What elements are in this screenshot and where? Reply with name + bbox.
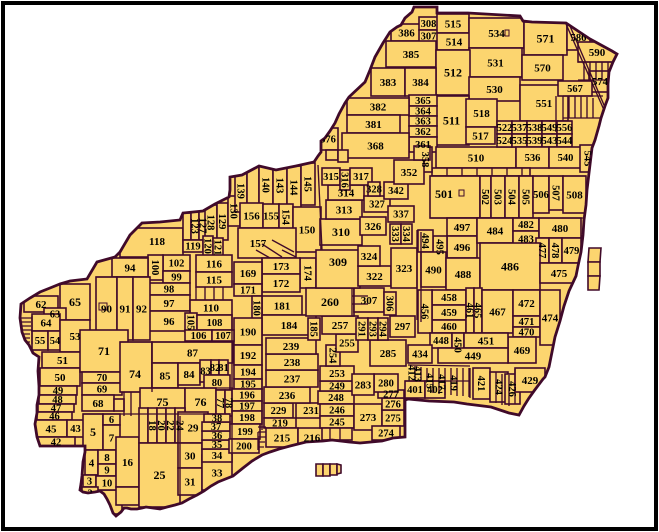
svg-text:467: 467 bbox=[489, 306, 506, 318]
svg-text:130: 130 bbox=[227, 203, 238, 219]
svg-text:567: 567 bbox=[567, 84, 583, 95]
svg-text:65: 65 bbox=[69, 295, 81, 309]
svg-text:55: 55 bbox=[35, 336, 46, 347]
svg-text:334: 334 bbox=[400, 226, 411, 243]
svg-text:97: 97 bbox=[164, 298, 176, 310]
svg-text:570: 570 bbox=[534, 62, 551, 74]
svg-text:275: 275 bbox=[385, 414, 401, 425]
svg-text:291: 291 bbox=[355, 321, 366, 337]
svg-text:194: 194 bbox=[240, 368, 257, 379]
svg-text:544: 544 bbox=[557, 136, 574, 147]
svg-text:365: 365 bbox=[415, 96, 431, 107]
svg-text:449: 449 bbox=[465, 350, 482, 362]
svg-text:536: 536 bbox=[525, 153, 541, 164]
svg-text:274: 274 bbox=[378, 429, 395, 440]
svg-text:155: 155 bbox=[263, 212, 279, 223]
svg-text:254: 254 bbox=[326, 348, 337, 365]
svg-text:307: 307 bbox=[421, 32, 437, 43]
svg-text:424: 424 bbox=[492, 379, 503, 396]
svg-text:415: 415 bbox=[423, 373, 434, 389]
svg-text:483: 483 bbox=[518, 235, 534, 246]
svg-text:219: 219 bbox=[272, 419, 288, 430]
svg-text:306: 306 bbox=[383, 296, 394, 312]
svg-text:497: 497 bbox=[454, 222, 471, 234]
svg-text:419: 419 bbox=[447, 375, 458, 391]
svg-text:448: 448 bbox=[433, 336, 449, 347]
svg-text:102: 102 bbox=[169, 259, 185, 270]
svg-text:494: 494 bbox=[419, 233, 430, 250]
svg-text:484: 484 bbox=[487, 225, 504, 237]
svg-text:51: 51 bbox=[57, 355, 68, 367]
svg-text:98: 98 bbox=[164, 285, 175, 296]
svg-text:107: 107 bbox=[215, 331, 231, 342]
svg-text:495: 495 bbox=[433, 239, 444, 255]
svg-text:6: 6 bbox=[109, 415, 114, 426]
svg-text:482: 482 bbox=[518, 220, 534, 231]
svg-text:538: 538 bbox=[527, 123, 543, 134]
svg-text:10: 10 bbox=[102, 479, 113, 490]
svg-text:30: 30 bbox=[185, 450, 197, 462]
svg-text:53: 53 bbox=[70, 331, 82, 343]
svg-text:80: 80 bbox=[212, 378, 223, 389]
svg-text:198: 198 bbox=[239, 413, 255, 424]
svg-text:283: 283 bbox=[355, 379, 372, 391]
svg-text:352: 352 bbox=[401, 167, 418, 179]
svg-text:100: 100 bbox=[149, 260, 160, 276]
svg-text:450: 450 bbox=[451, 337, 462, 353]
svg-text:139: 139 bbox=[234, 183, 245, 199]
svg-text:54: 54 bbox=[50, 336, 61, 347]
svg-text:543: 543 bbox=[542, 136, 558, 147]
svg-text:501: 501 bbox=[435, 187, 453, 201]
svg-text:45: 45 bbox=[46, 423, 58, 435]
svg-text:571: 571 bbox=[537, 32, 555, 46]
svg-text:293: 293 bbox=[366, 321, 377, 337]
svg-text:294: 294 bbox=[376, 321, 387, 338]
svg-text:181: 181 bbox=[274, 300, 291, 312]
svg-text:556: 556 bbox=[557, 123, 573, 134]
svg-text:43: 43 bbox=[70, 424, 81, 435]
svg-text:25: 25 bbox=[154, 468, 166, 482]
svg-text:574: 574 bbox=[592, 77, 609, 88]
svg-text:342: 342 bbox=[388, 186, 404, 197]
svg-text:116: 116 bbox=[206, 258, 222, 270]
svg-text:157: 157 bbox=[250, 238, 267, 250]
svg-text:517: 517 bbox=[472, 130, 489, 142]
svg-text:358: 358 bbox=[419, 152, 430, 168]
svg-text:479: 479 bbox=[564, 246, 580, 257]
svg-text:231: 231 bbox=[303, 406, 319, 417]
svg-text:180: 180 bbox=[250, 300, 261, 316]
svg-text:255: 255 bbox=[339, 339, 355, 350]
svg-text:273: 273 bbox=[360, 412, 377, 424]
svg-text:384: 384 bbox=[412, 77, 429, 89]
svg-text:537: 537 bbox=[512, 123, 528, 134]
svg-text:144: 144 bbox=[287, 180, 298, 197]
svg-text:323: 323 bbox=[396, 263, 413, 275]
svg-text:68: 68 bbox=[93, 398, 105, 410]
svg-text:280: 280 bbox=[378, 379, 394, 390]
svg-text:368: 368 bbox=[367, 140, 384, 152]
svg-text:8: 8 bbox=[104, 452, 110, 464]
svg-text:511: 511 bbox=[443, 114, 460, 128]
svg-text:154: 154 bbox=[279, 209, 290, 226]
svg-text:276: 276 bbox=[385, 400, 401, 411]
svg-text:121: 121 bbox=[211, 240, 222, 256]
svg-text:169: 169 bbox=[240, 268, 257, 280]
svg-text:172: 172 bbox=[273, 278, 290, 290]
svg-text:34: 34 bbox=[212, 451, 223, 462]
svg-text:531: 531 bbox=[487, 57, 504, 69]
svg-text:236: 236 bbox=[279, 390, 296, 402]
svg-text:512: 512 bbox=[444, 66, 462, 80]
svg-text:237: 237 bbox=[284, 373, 301, 385]
svg-text:472: 472 bbox=[518, 298, 535, 310]
svg-text:94: 94 bbox=[125, 262, 137, 274]
svg-text:333: 333 bbox=[389, 226, 400, 242]
svg-text:480: 480 bbox=[552, 223, 569, 235]
svg-text:229: 229 bbox=[271, 406, 287, 417]
svg-text:508: 508 bbox=[566, 189, 583, 201]
svg-text:308: 308 bbox=[421, 19, 437, 30]
svg-text:310: 310 bbox=[332, 225, 350, 239]
svg-text:327: 327 bbox=[369, 200, 385, 211]
svg-text:590: 590 bbox=[589, 47, 606, 59]
svg-text:143: 143 bbox=[273, 178, 284, 194]
svg-text:33: 33 bbox=[212, 467, 224, 479]
svg-text:260: 260 bbox=[321, 295, 339, 309]
svg-text:477: 477 bbox=[536, 243, 547, 259]
svg-text:9: 9 bbox=[104, 466, 109, 477]
svg-text:382: 382 bbox=[370, 101, 387, 113]
svg-text:90: 90 bbox=[101, 303, 113, 315]
svg-text:328: 328 bbox=[366, 185, 382, 196]
svg-text:322: 322 bbox=[366, 271, 383, 283]
svg-text:456: 456 bbox=[418, 304, 429, 320]
svg-text:245: 245 bbox=[329, 418, 345, 429]
svg-text:522: 522 bbox=[497, 123, 513, 134]
svg-text:313: 313 bbox=[336, 204, 353, 216]
svg-text:535: 535 bbox=[512, 136, 528, 147]
svg-text:507: 507 bbox=[549, 185, 560, 201]
svg-text:31: 31 bbox=[185, 476, 196, 488]
svg-text:119: 119 bbox=[185, 242, 200, 253]
svg-text:184: 184 bbox=[281, 320, 298, 332]
svg-text:5: 5 bbox=[90, 425, 96, 439]
svg-text:451: 451 bbox=[478, 335, 495, 347]
svg-text:29: 29 bbox=[188, 422, 200, 434]
svg-text:361: 361 bbox=[415, 140, 431, 151]
svg-text:315: 315 bbox=[323, 172, 339, 183]
svg-text:539: 539 bbox=[527, 136, 543, 147]
svg-text:118: 118 bbox=[149, 236, 165, 248]
svg-text:248: 248 bbox=[328, 393, 344, 404]
svg-text:85: 85 bbox=[160, 370, 172, 382]
svg-text:199: 199 bbox=[237, 427, 253, 438]
svg-text:246: 246 bbox=[329, 406, 345, 417]
svg-text:434: 434 bbox=[412, 350, 429, 361]
svg-text:22: 22 bbox=[164, 420, 175, 431]
svg-text:84: 84 bbox=[184, 369, 196, 381]
svg-text:106: 106 bbox=[191, 331, 207, 342]
svg-text:515: 515 bbox=[445, 18, 462, 30]
svg-text:78: 78 bbox=[222, 398, 233, 409]
svg-text:185: 185 bbox=[307, 321, 318, 337]
svg-text:534: 534 bbox=[488, 28, 505, 40]
svg-text:421: 421 bbox=[475, 376, 486, 392]
svg-text:383: 383 bbox=[380, 77, 397, 89]
svg-text:190: 190 bbox=[240, 326, 257, 338]
svg-text:156: 156 bbox=[243, 210, 260, 222]
svg-text:469: 469 bbox=[514, 345, 531, 357]
svg-text:62: 62 bbox=[36, 299, 48, 311]
svg-text:99: 99 bbox=[171, 273, 182, 284]
svg-text:253: 253 bbox=[329, 369, 345, 380]
svg-text:417: 417 bbox=[435, 374, 446, 390]
svg-text:510: 510 bbox=[468, 152, 485, 164]
svg-text:503: 503 bbox=[491, 189, 502, 205]
svg-text:362: 362 bbox=[415, 127, 431, 138]
svg-text:75: 75 bbox=[157, 395, 169, 409]
svg-text:70: 70 bbox=[97, 373, 108, 384]
svg-text:460: 460 bbox=[441, 322, 457, 333]
svg-text:316: 316 bbox=[338, 172, 349, 188]
svg-text:24: 24 bbox=[173, 420, 184, 431]
svg-text:470: 470 bbox=[519, 328, 535, 339]
svg-text:429: 429 bbox=[522, 375, 539, 387]
svg-text:140: 140 bbox=[259, 177, 270, 193]
svg-text:285: 285 bbox=[380, 348, 397, 360]
svg-text:496: 496 bbox=[454, 242, 471, 254]
svg-text:74: 74 bbox=[129, 367, 141, 381]
svg-text:4: 4 bbox=[89, 457, 95, 469]
svg-text:150: 150 bbox=[299, 224, 316, 236]
svg-text:486: 486 bbox=[501, 260, 519, 274]
svg-text:91: 91 bbox=[120, 303, 131, 315]
svg-text:76: 76 bbox=[195, 395, 207, 409]
svg-text:215: 215 bbox=[274, 432, 291, 444]
svg-text:38: 38 bbox=[212, 414, 223, 425]
svg-text:518: 518 bbox=[473, 108, 490, 120]
svg-text:478: 478 bbox=[549, 243, 560, 259]
svg-text:81: 81 bbox=[218, 363, 229, 374]
svg-text:324: 324 bbox=[361, 251, 378, 263]
svg-text:506: 506 bbox=[533, 190, 549, 201]
svg-text:200: 200 bbox=[236, 442, 252, 453]
svg-text:120: 120 bbox=[201, 238, 212, 254]
svg-text:530: 530 bbox=[486, 84, 503, 96]
svg-text:363: 363 bbox=[415, 117, 431, 128]
svg-text:71: 71 bbox=[98, 344, 110, 358]
svg-text:514: 514 bbox=[446, 36, 463, 48]
svg-text:129: 129 bbox=[216, 214, 227, 230]
svg-text:505: 505 bbox=[519, 189, 530, 205]
svg-text:128: 128 bbox=[204, 215, 215, 231]
svg-text:16: 16 bbox=[122, 457, 134, 469]
svg-text:115: 115 bbox=[206, 274, 222, 286]
svg-text:307: 307 bbox=[361, 295, 378, 307]
svg-text:385: 385 bbox=[403, 49, 420, 61]
svg-text:540: 540 bbox=[558, 153, 574, 164]
svg-text:502: 502 bbox=[479, 189, 490, 205]
svg-text:413: 413 bbox=[411, 366, 422, 382]
svg-text:145: 145 bbox=[301, 176, 312, 192]
svg-text:401: 401 bbox=[407, 385, 423, 396]
svg-text:504: 504 bbox=[505, 189, 516, 206]
svg-text:173: 173 bbox=[273, 261, 290, 273]
svg-text:475: 475 bbox=[551, 268, 568, 280]
svg-text:551: 551 bbox=[536, 98, 553, 110]
svg-text:317: 317 bbox=[353, 172, 369, 183]
svg-text:249: 249 bbox=[329, 382, 345, 393]
svg-text:192: 192 bbox=[240, 350, 257, 362]
svg-text:257: 257 bbox=[332, 320, 349, 332]
svg-text:337: 337 bbox=[393, 210, 409, 221]
svg-text:459: 459 bbox=[441, 308, 457, 319]
svg-text:471: 471 bbox=[519, 317, 535, 328]
svg-text:171: 171 bbox=[240, 286, 256, 297]
svg-text:381: 381 bbox=[365, 119, 382, 131]
svg-text:7: 7 bbox=[109, 432, 115, 444]
svg-text:458: 458 bbox=[441, 293, 457, 304]
svg-text:174: 174 bbox=[301, 265, 312, 282]
svg-text:465: 465 bbox=[471, 303, 482, 319]
svg-text:488: 488 bbox=[455, 269, 472, 281]
svg-text:105: 105 bbox=[184, 315, 195, 331]
svg-text:426: 426 bbox=[506, 381, 517, 397]
svg-text:46: 46 bbox=[49, 412, 60, 423]
svg-text:110: 110 bbox=[203, 302, 219, 314]
svg-text:549: 549 bbox=[542, 123, 558, 134]
svg-text:50: 50 bbox=[55, 372, 67, 384]
svg-text:297: 297 bbox=[395, 322, 411, 333]
svg-text:474: 474 bbox=[542, 312, 559, 324]
svg-text:195: 195 bbox=[240, 380, 256, 391]
svg-text:238: 238 bbox=[284, 357, 301, 369]
svg-text:309: 309 bbox=[329, 255, 347, 269]
svg-text:197: 197 bbox=[239, 402, 255, 413]
svg-text:69: 69 bbox=[97, 385, 108, 396]
svg-text:277: 277 bbox=[383, 390, 399, 401]
svg-text:64: 64 bbox=[41, 317, 53, 329]
svg-text:386: 386 bbox=[398, 27, 415, 39]
svg-text:87: 87 bbox=[187, 347, 199, 359]
svg-text:314: 314 bbox=[338, 187, 355, 199]
svg-text:3: 3 bbox=[87, 477, 92, 488]
svg-text:239: 239 bbox=[283, 341, 300, 353]
svg-text:196: 196 bbox=[239, 391, 255, 402]
svg-text:490: 490 bbox=[425, 264, 442, 276]
svg-text:108: 108 bbox=[207, 318, 223, 329]
svg-text:92: 92 bbox=[136, 303, 148, 315]
svg-text:96: 96 bbox=[164, 316, 176, 328]
svg-text:326: 326 bbox=[365, 221, 382, 233]
